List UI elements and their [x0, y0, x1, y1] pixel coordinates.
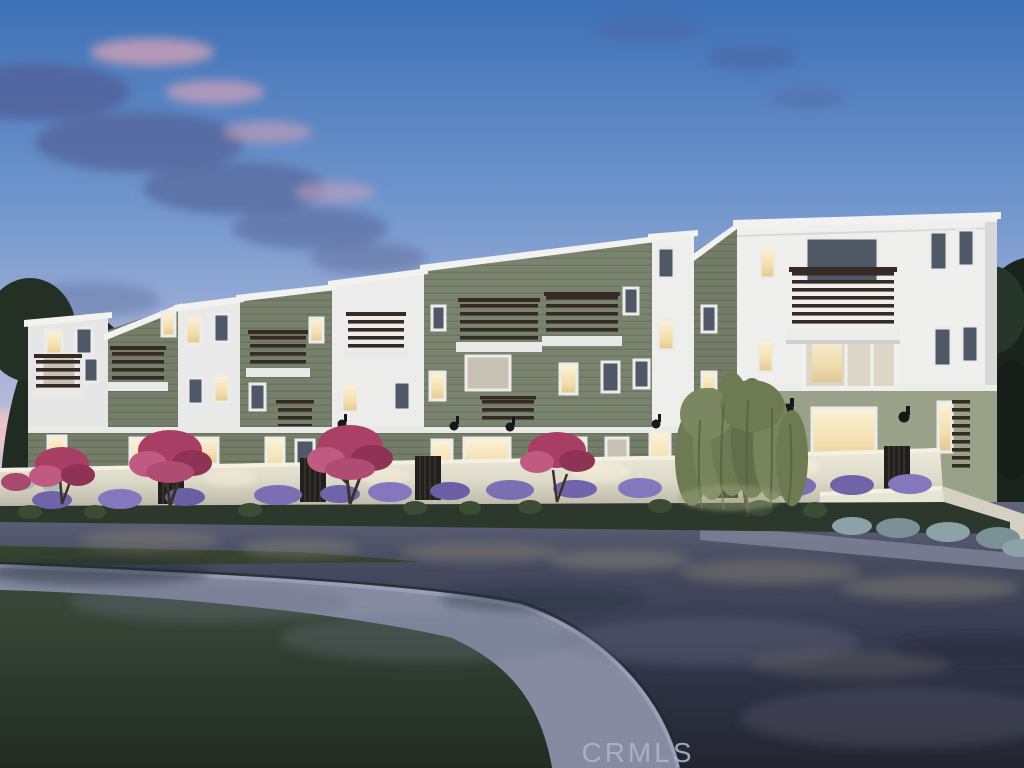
listing-photo: CRMLS: [0, 0, 1024, 768]
crmls-watermark: CRMLS: [581, 737, 694, 768]
balcony-unit-4: [246, 330, 310, 377]
rendering-canvas: CRMLS: [0, 0, 1024, 768]
balcony-unit-6b: [542, 292, 622, 346]
balcony-unit-1: [32, 354, 84, 399]
balcony-unit-6-mid: [480, 396, 536, 424]
balcony-unit-5: [344, 312, 408, 359]
balcony-unit-6a: [456, 298, 542, 352]
balcony-unit-2: [108, 346, 168, 391]
balcony-unit-4-mid: [276, 400, 314, 426]
slat-privacy-screen: [952, 396, 970, 468]
balcony-corner-unit: [786, 267, 900, 344]
small-pink-shrub: [1, 473, 31, 491]
